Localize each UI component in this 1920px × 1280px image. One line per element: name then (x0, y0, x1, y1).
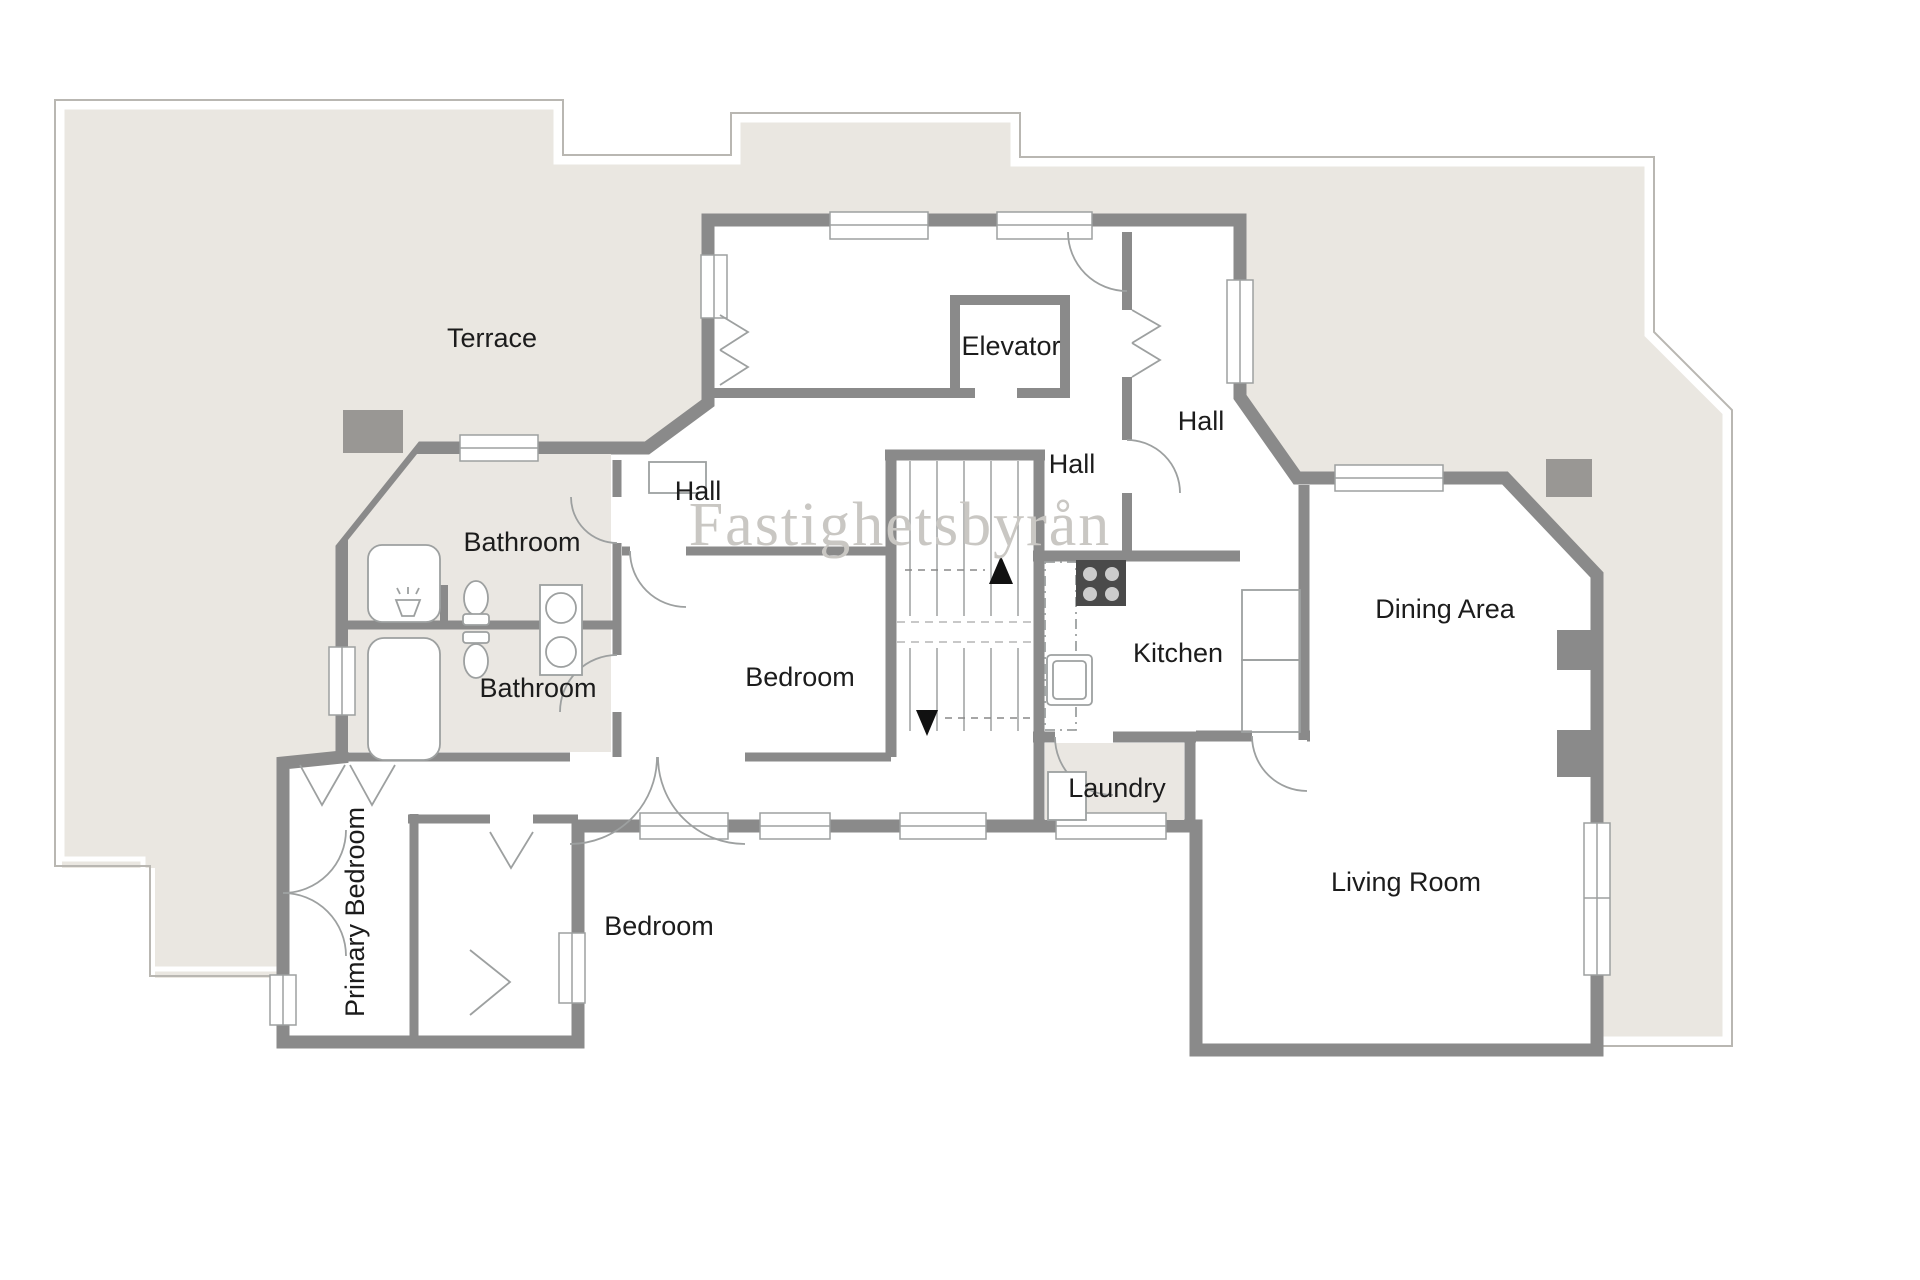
label-living-room: Living Room (1331, 867, 1481, 897)
sink-top (546, 593, 576, 623)
label-primary-bedroom: Primary Bedroom (340, 807, 370, 1017)
toilet-top-bowl (464, 581, 488, 615)
window-bath-west (329, 647, 355, 715)
burner-1 (1083, 567, 1097, 581)
bathtub-top (368, 545, 440, 622)
window-bath-north (460, 435, 538, 461)
label-bedroom-bottom: Bedroom (604, 911, 714, 941)
toilet-bottom-tank (463, 632, 489, 643)
window-bottom-row-2 (760, 813, 830, 839)
window-living-east (1584, 823, 1610, 975)
label-bathroom-bottom: Bathroom (479, 673, 596, 703)
window-top-1 (830, 212, 928, 239)
terrace-pillar-left (343, 410, 403, 453)
burner-2 (1105, 567, 1119, 581)
bathtub-bottom (368, 638, 440, 760)
burner-4 (1105, 587, 1119, 601)
window-dining-top (1335, 465, 1443, 491)
terrace-pillar-right (1546, 459, 1592, 497)
label-laundry: Laundry (1068, 773, 1166, 803)
window-topblock-east (1227, 280, 1253, 383)
sink-bottom (546, 637, 576, 667)
burner-3 (1083, 587, 1097, 601)
window-top-2 (997, 212, 1092, 239)
stove (1076, 560, 1126, 606)
wall-pillar-1 (1557, 630, 1597, 670)
label-elevator: Elevator (961, 331, 1060, 361)
label-hall-middle: Hall (1049, 449, 1096, 479)
window-topblock-west (701, 255, 727, 318)
window-primary-west (270, 975, 296, 1025)
toilet-top-tank (463, 614, 489, 625)
watermark-text: Fastighetsbyrån (689, 491, 1112, 559)
label-terrace: Terrace (447, 323, 537, 353)
label-bedroom-center: Bedroom (745, 662, 855, 692)
window-bedroomb-east (559, 933, 585, 1003)
floor-plan-svg: Fastighetsbyrån Terrace Elevator Hall Ha… (0, 0, 1920, 1280)
window-bottom-row-1 (640, 813, 728, 839)
label-bathroom-top: Bathroom (463, 527, 580, 557)
stair-cut-band (897, 616, 1033, 648)
label-hall-left: Hall (675, 476, 722, 506)
label-kitchen: Kitchen (1133, 638, 1223, 668)
floor-plan: Fastighetsbyrån Terrace Elevator Hall Ha… (0, 0, 1920, 1280)
wall-pillar-2 (1557, 730, 1597, 777)
window-bottom-row-3 (900, 813, 986, 839)
label-dining-area: Dining Area (1375, 594, 1516, 624)
label-hall-top-right: Hall (1178, 406, 1225, 436)
